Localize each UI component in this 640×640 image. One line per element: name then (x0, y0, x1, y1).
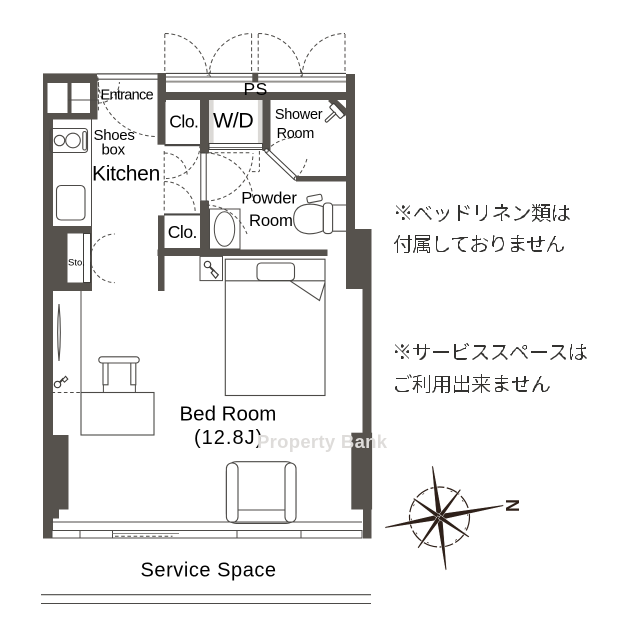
svg-text:W/D: W/D (213, 109, 253, 133)
svg-text:Clo.: Clo. (169, 112, 198, 132)
svg-text:Property Bank: Property Bank (257, 431, 388, 452)
svg-text:Entrance: Entrance (101, 88, 154, 104)
svg-text:Clo.: Clo. (168, 222, 197, 242)
svg-text:box: box (102, 141, 126, 158)
svg-text:Bed Room: Bed Room (180, 402, 277, 425)
svg-text:N: N (502, 499, 522, 512)
svg-text:Powder: Powder (241, 188, 297, 207)
svg-text:(12.8J): (12.8J) (194, 427, 263, 449)
svg-text:Shower: Shower (275, 107, 323, 123)
svg-text:PS: PS (244, 79, 268, 99)
svg-text:Service Space: Service Space (141, 560, 277, 582)
svg-text:Room: Room (277, 126, 315, 142)
svg-text:Kitchen: Kitchen (92, 163, 160, 186)
svg-text:Sto.: Sto. (68, 258, 85, 269)
svg-text:Room: Room (249, 211, 293, 230)
